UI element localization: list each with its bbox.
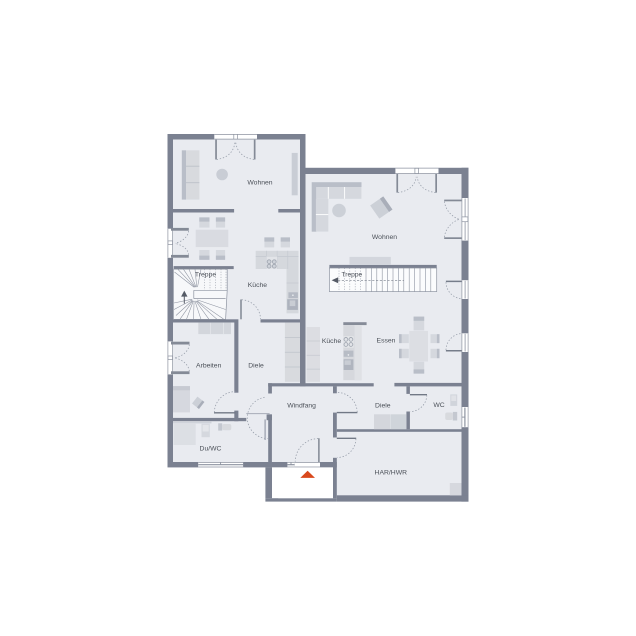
svg-text:Windfang: Windfang [287,403,316,410]
svg-text:WC: WC [433,402,444,409]
svg-text:HAR/HWR: HAR/HWR [375,470,408,477]
svg-text:Essen: Essen [377,338,396,345]
svg-text:Wohnen: Wohnen [247,179,272,186]
svg-text:Treppe: Treppe [195,272,217,279]
svg-text:Küche: Küche [322,338,341,345]
svg-text:Arbeiten: Arbeiten [196,362,222,369]
svg-text:Treppe: Treppe [342,272,363,279]
svg-text:Diele: Diele [375,402,391,409]
svg-text:Küche: Küche [248,282,267,289]
svg-text:Diele: Diele [248,362,264,369]
svg-text:Du/WC: Du/WC [200,445,222,452]
svg-text:Wohnen: Wohnen [372,234,397,241]
